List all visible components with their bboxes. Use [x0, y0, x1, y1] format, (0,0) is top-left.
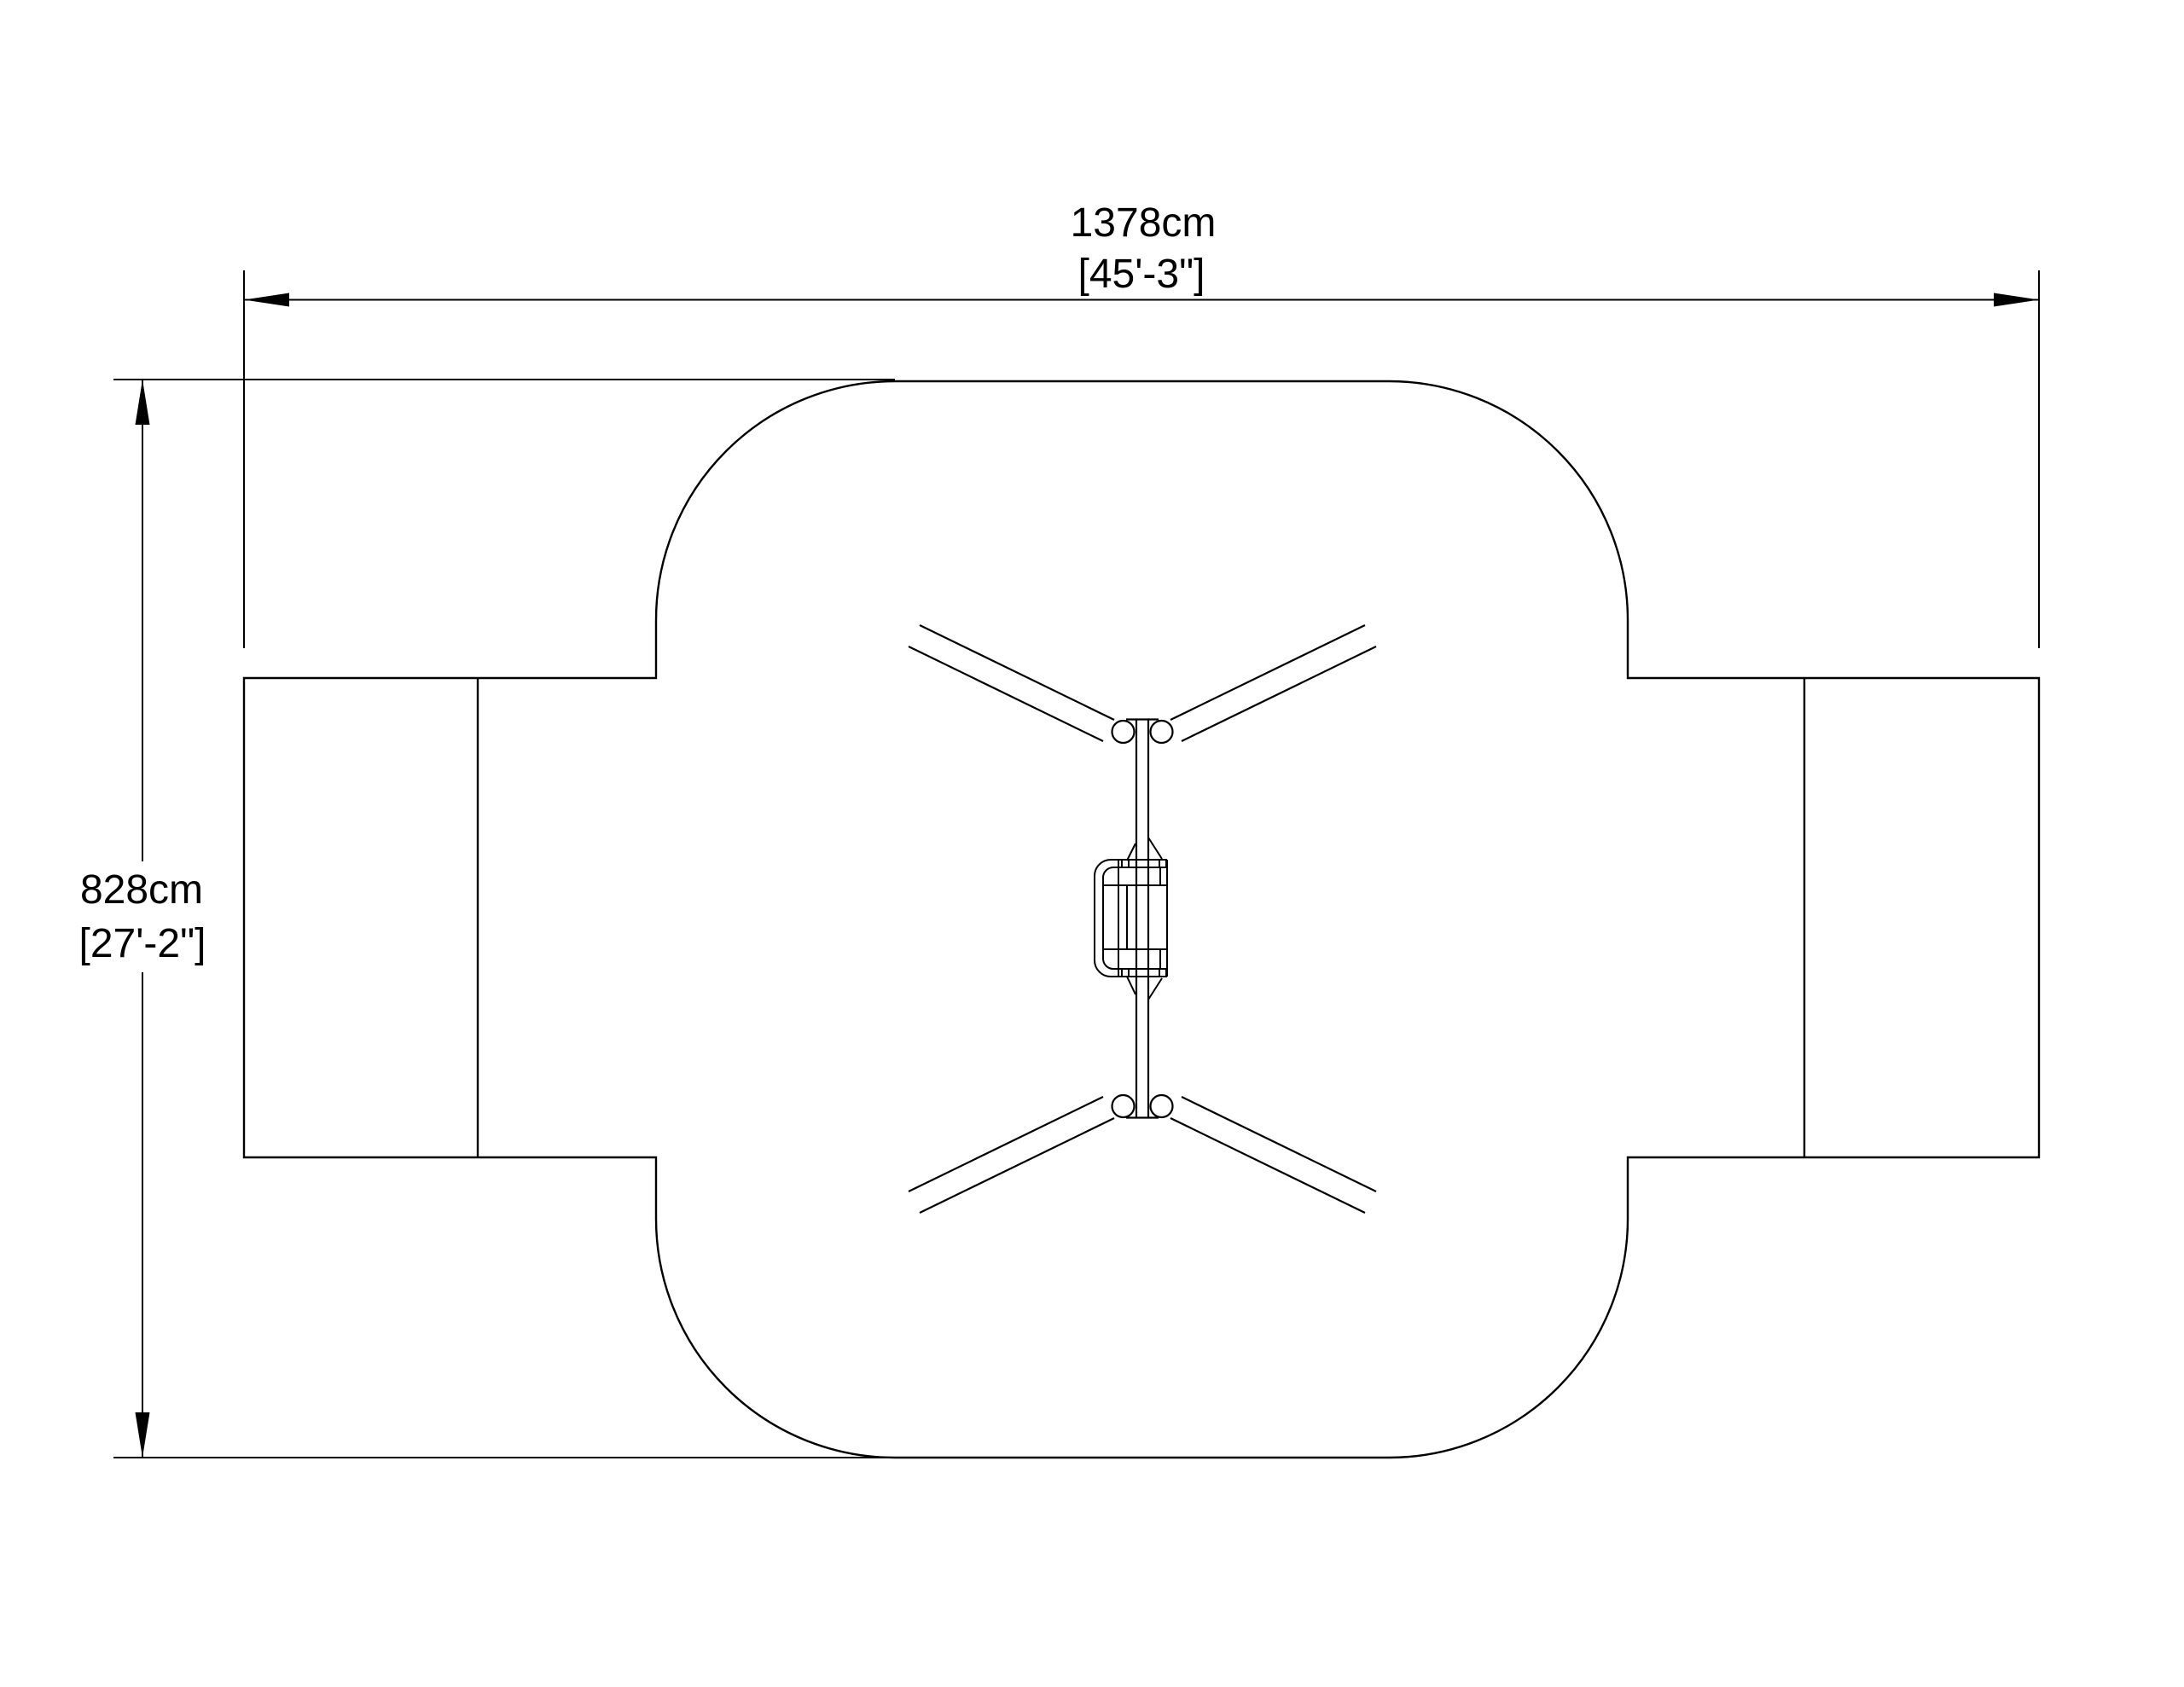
frame-leg-bottom-left [909, 1097, 1114, 1213]
seat-strut-top-left [1127, 843, 1136, 861]
seat-frame-bars [1103, 860, 1167, 977]
arrowhead-left [244, 293, 289, 307]
seat-clamp-top-right [1159, 860, 1166, 867]
footprint-outline [244, 381, 2039, 1458]
drawing-sheet: 1378cm [45'-3"] 828cm [27'-2"] [0, 0, 2184, 1687]
frame-leg-bottom-right [1170, 1097, 1376, 1213]
seat-frame-edges [1118, 860, 1167, 977]
arrowhead-up [136, 380, 150, 425]
seat-strut-bottom-right [1148, 978, 1162, 1000]
width-dimension-imperial-label: [45'-3"] [1078, 252, 1205, 297]
post-cap-top-right [1151, 721, 1173, 743]
seat-clamp-bottom-right [1159, 969, 1166, 977]
seat-clamp-bottom-left [1122, 969, 1129, 977]
height-dimension-imperial-label: [27'-2"] [79, 921, 206, 966]
post-cap-top-left [1112, 721, 1135, 743]
post-cap-bottom-right [1151, 1095, 1173, 1117]
swing-frame [909, 625, 1376, 1213]
frame-leg-top-left [909, 625, 1114, 741]
height-dimension-metric-label: 828cm [80, 867, 203, 913]
arrowhead-right [1994, 293, 2039, 307]
post-cap-bottom-left [1112, 1095, 1135, 1117]
frame-leg-top-right [1170, 625, 1376, 741]
plan-view-drawing: 1378cm [45'-3"] 828cm [27'-2"] [0, 0, 2184, 1687]
seat-strut-bottom-left [1127, 977, 1136, 994]
seat-handle-inner [1103, 867, 1113, 969]
vertical-dimension [113, 380, 895, 1458]
seat-strut-top-right [1148, 838, 1162, 859]
crossbeam [1136, 720, 1148, 1117]
seat-assembly [1095, 838, 1167, 1000]
arrowhead-down [136, 1412, 150, 1458]
width-dimension-metric-label: 1378cm [1071, 200, 1217, 246]
horizontal-dimension [244, 270, 2039, 648]
